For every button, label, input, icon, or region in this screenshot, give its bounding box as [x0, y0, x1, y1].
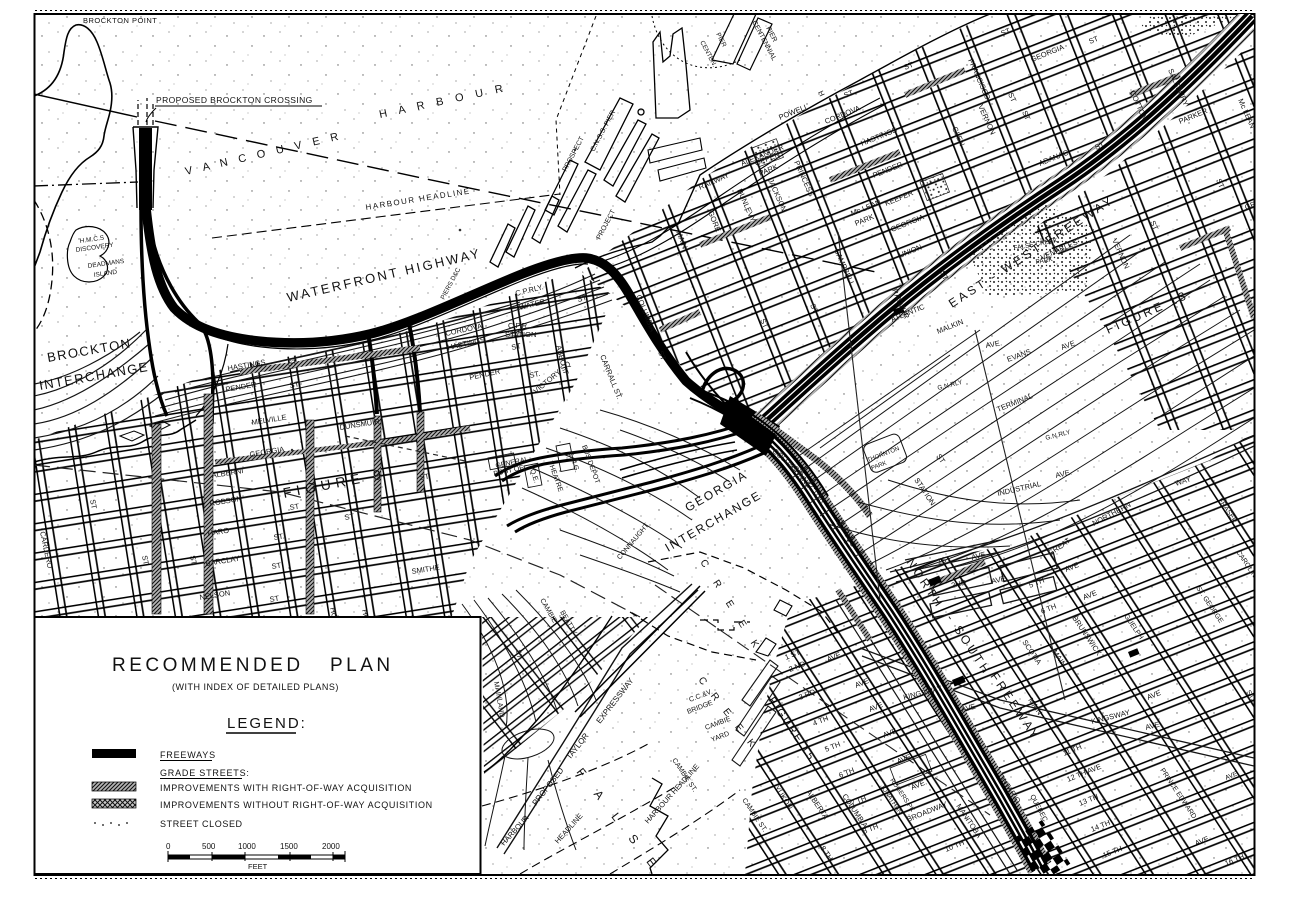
svg-text:STREET CLOSED: STREET CLOSED	[160, 819, 243, 829]
svg-text:C.P.R.: C.P.R.	[508, 321, 529, 330]
svg-text:2000: 2000	[322, 842, 340, 851]
svg-text:FREEWAYS: FREEWAYS	[160, 750, 216, 760]
svg-text:STATION: STATION	[505, 330, 536, 339]
svg-text:IMPROVEMENTS WITH RIGHT-OF-W: IMPROVEMENTS WITH RIGHT-OF-WAY ACQUISITI…	[160, 783, 412, 793]
svg-text:ST.: ST.	[273, 531, 285, 542]
svg-text:RECOMMENDED: RECOMMENDED	[112, 655, 304, 676]
svg-text:ST: ST	[289, 502, 300, 512]
svg-text:PROPOSED BROCKTON CROSSING: PROPOSED BROCKTON CROSSING	[156, 95, 313, 105]
svg-text:BROCKTON POINT: BROCKTON POINT	[83, 16, 157, 25]
svg-text:FEET: FEET	[248, 862, 268, 871]
svg-text:(WITH INDEX OF DETAILED PLANS): (WITH INDEX OF DETAILED PLANS)	[172, 682, 339, 692]
svg-text:500: 500	[202, 842, 216, 851]
svg-text:ST: ST	[271, 561, 282, 571]
svg-text:1000: 1000	[238, 842, 256, 851]
svg-text:ST: ST	[344, 512, 355, 522]
svg-text:ST: ST	[287, 357, 298, 368]
svg-text:1500: 1500	[280, 842, 298, 851]
svg-text:ST: ST	[289, 379, 300, 390]
svg-text:GRADE STREETS:: GRADE STREETS:	[160, 768, 250, 778]
svg-text:ST: ST	[419, 472, 430, 482]
svg-text:LEGEND:: LEGEND:	[227, 715, 307, 732]
svg-text:IMPROVEMENTS WITHOUT RIGHT-O: IMPROVEMENTS WITHOUT RIGHT-OF-WAY ACQUIS…	[160, 800, 433, 810]
svg-text:0: 0	[166, 842, 171, 851]
svg-text:ST: ST	[269, 594, 280, 604]
svg-text:PLAN: PLAN	[330, 655, 394, 676]
